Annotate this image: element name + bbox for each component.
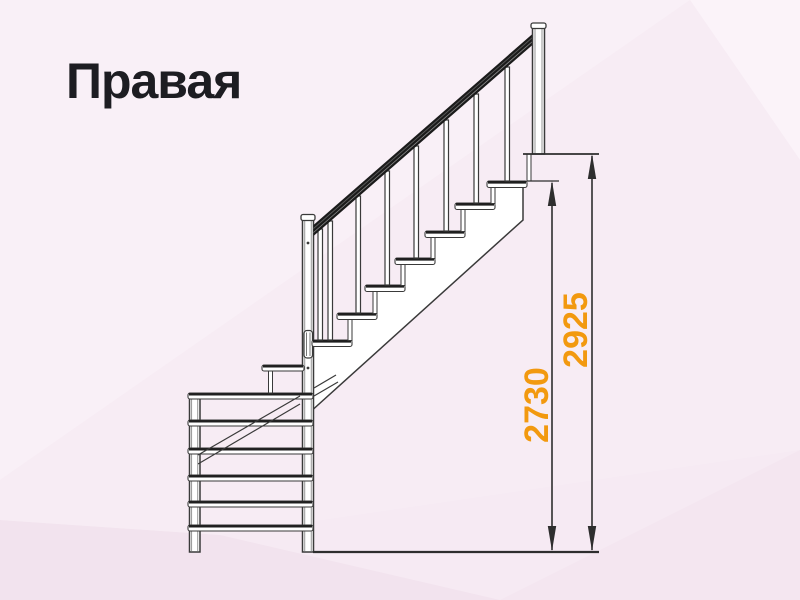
riser-bar xyxy=(373,292,377,314)
top-post-cap xyxy=(531,23,546,29)
fixing-dot xyxy=(307,367,310,370)
tread xyxy=(188,525,313,531)
tread xyxy=(487,181,527,188)
tread xyxy=(312,340,352,347)
lower-handrail-end xyxy=(304,331,313,359)
baluster xyxy=(444,120,449,231)
tread xyxy=(455,203,495,210)
riser-bar xyxy=(431,238,435,259)
baluster xyxy=(474,94,479,203)
tread xyxy=(425,231,465,238)
baluster xyxy=(414,146,419,258)
dimension-label-2925: 2925 xyxy=(557,292,595,368)
baluster xyxy=(318,229,323,340)
tread xyxy=(188,501,313,507)
riser-bar xyxy=(348,320,352,341)
baluster xyxy=(385,171,390,285)
tread xyxy=(188,475,313,481)
corner-post-cap xyxy=(301,215,315,221)
tread xyxy=(188,448,313,454)
riser-bar xyxy=(491,188,495,204)
fixing-dot xyxy=(307,242,310,245)
baluster xyxy=(328,221,333,340)
riser-bar xyxy=(401,265,405,286)
landing-riser xyxy=(527,154,531,181)
baluster xyxy=(505,67,510,181)
tread xyxy=(337,313,377,320)
tread xyxy=(365,285,405,292)
riser-bar xyxy=(461,210,465,232)
dimension-label-2730: 2730 xyxy=(518,367,556,443)
top-newel-post xyxy=(531,23,546,154)
tread xyxy=(395,258,435,265)
staircase-diagram-canvas: 2730 2925 Правая xyxy=(0,0,800,600)
diagram-title: Правая xyxy=(66,56,241,106)
tread xyxy=(188,393,313,399)
baluster xyxy=(356,196,361,313)
